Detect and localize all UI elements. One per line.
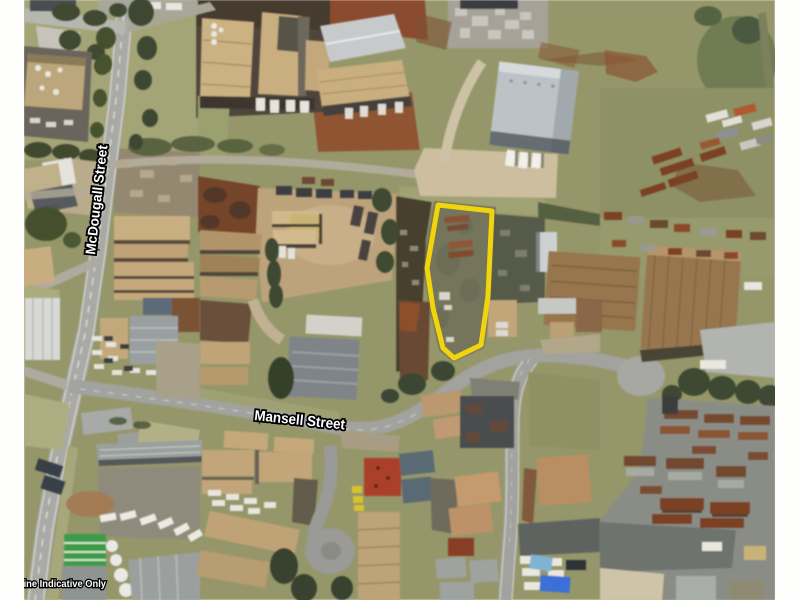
svg-text:line Indicative Only: line Indicative Only — [21, 578, 106, 590]
